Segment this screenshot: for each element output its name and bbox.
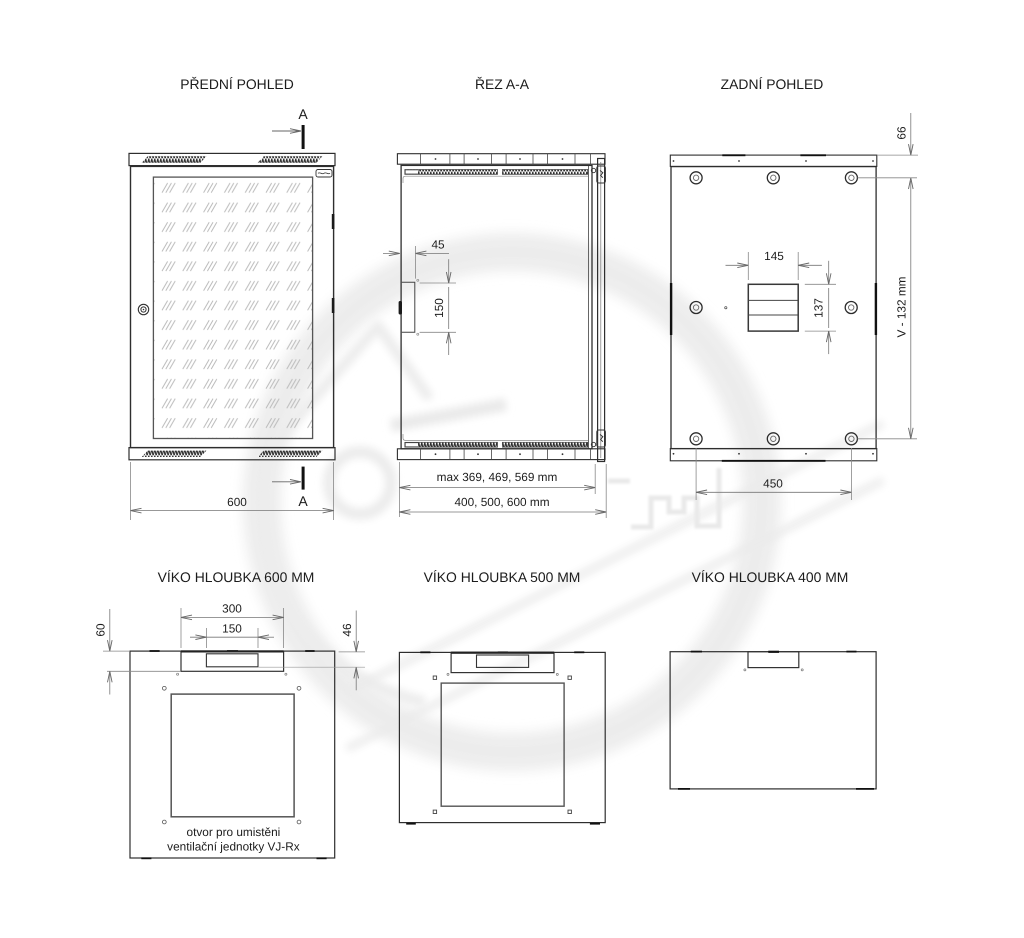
svg-text:150: 150 xyxy=(222,622,242,636)
svg-text:600: 600 xyxy=(227,495,247,509)
svg-text:ZADNÍ POHLED: ZADNÍ POHLED xyxy=(721,76,824,92)
svg-text:45: 45 xyxy=(431,238,445,252)
svg-text:145: 145 xyxy=(764,249,784,263)
svg-text:VÍKO HLOUBKA 600 MM: VÍKO HLOUBKA 600 MM xyxy=(158,569,315,585)
svg-text:VÍKO HLOUBKA 400 MM: VÍKO HLOUBKA 400 MM xyxy=(692,569,849,585)
svg-text:otvor pro umistěni: otvor pro umistěni xyxy=(187,825,281,839)
svg-text:46: 46 xyxy=(340,623,354,637)
svg-text:400, 500, 600 mm: 400, 500, 600 mm xyxy=(454,495,549,509)
svg-text:ŘEZ A-A: ŘEZ A-A xyxy=(475,76,530,92)
svg-text:150: 150 xyxy=(432,298,446,318)
svg-text:450: 450 xyxy=(763,477,783,491)
svg-text:PŘEDNÍ POHLED: PŘEDNÍ POHLED xyxy=(180,76,293,92)
svg-text:V - 132 mm: V - 132 mm xyxy=(895,276,909,337)
svg-text:66: 66 xyxy=(895,126,909,140)
svg-text:ventilační jednotky VJ-Rx: ventilační jednotky VJ-Rx xyxy=(167,840,300,854)
svg-text:max 369, 469, 569 mm: max 369, 469, 569 mm xyxy=(437,470,558,484)
svg-text:137: 137 xyxy=(812,298,826,318)
svg-text:60: 60 xyxy=(94,623,108,637)
svg-text:A: A xyxy=(298,493,308,509)
svg-text:VÍKO HLOUBKA 500 MM: VÍKO HLOUBKA 500 MM xyxy=(424,569,581,585)
svg-text:A: A xyxy=(298,106,308,122)
svg-text:300: 300 xyxy=(222,602,242,616)
